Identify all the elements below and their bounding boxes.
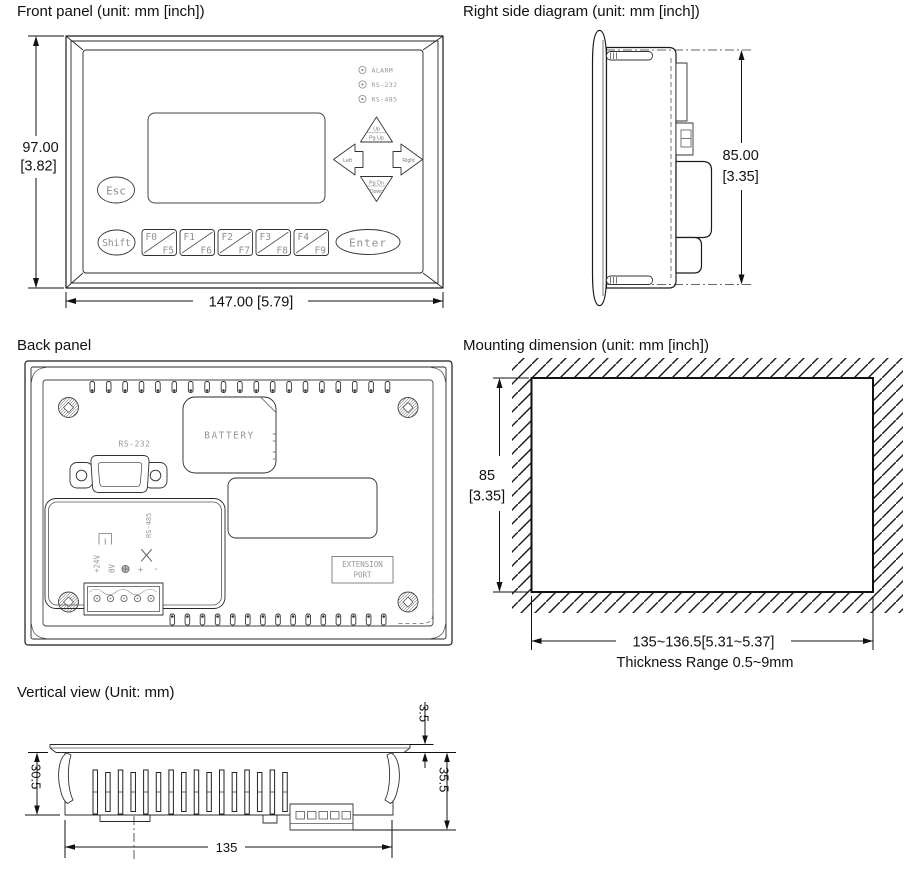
f7-label: F7: [239, 246, 250, 257]
front-height-inch: [3.82]: [20, 159, 56, 175]
vv-terminal-outline: [290, 804, 353, 830]
shift-button-label: Shift: [102, 238, 131, 249]
rs485-terminal-label: RS-485: [145, 513, 153, 538]
vv-body-dim: 30.5: [29, 764, 44, 789]
power-terminal-block[interactable]: [84, 583, 163, 615]
mounting-drawing: 85 [3.35] 135~136.5[5.31~5.37] Thickness…: [460, 330, 915, 677]
back-panel-drawing: RS-232 BATTERY: [0, 330, 460, 660]
side-connector-block: [676, 123, 693, 155]
vv-depth-dimension: 35.5: [353, 753, 456, 831]
lcd-screen: [148, 113, 325, 203]
front-height-dimension: 97.00 [3.82]: [20, 36, 64, 288]
front-width-dimension: 147.00 [5.79]: [66, 292, 443, 311]
panel-cutout: [532, 378, 874, 592]
dimension-drawing-page: { "front": { "title": "Front panel (unit…: [0, 0, 915, 877]
back-panel-view: Back panel RS-232: [0, 330, 460, 660]
rs485-led-dot-icon: [361, 98, 363, 100]
right-side-view: Right side diagram (unit: mm [inch]) 85.…: [460, 0, 915, 330]
rs485-plus-label: +: [138, 566, 143, 576]
vv-foot: [100, 815, 150, 822]
side-foot: [676, 238, 702, 274]
vv-bezel-dim: 3.5: [417, 704, 432, 722]
front-panel-view: Front panel (unit: mm [inch]) ALARM RS-2…: [0, 0, 460, 325]
front-width-dim: 147.00 [5.79]: [209, 295, 294, 311]
alarm-led-dot-icon: [361, 69, 363, 71]
rs232-led-dot-icon: [361, 83, 363, 85]
bottom-vent-slots: [170, 614, 386, 625]
pgup-key-label: Pg Up: [369, 135, 384, 141]
f9-label: F9: [315, 246, 327, 257]
cutout-height-inch: [3.35]: [469, 489, 505, 505]
vv-vent-slots: [93, 770, 287, 814]
vertical-view: Vertical view (Unit: mm) 3.5 35.5: [0, 660, 470, 877]
rs232-port-label: RS-232: [119, 440, 151, 449]
rs485-led-label: RS-485: [372, 95, 398, 103]
down-key-label: Down: [370, 189, 384, 195]
extension-port-label-line2: PORT: [353, 571, 372, 580]
rs232-screw-hole-icon: [150, 470, 161, 481]
vv-small-connector: [263, 815, 277, 823]
esc-button-label: Esc: [106, 185, 126, 198]
right-side-drawing: 85.00 [3.35]: [460, 0, 915, 330]
rs232-shell: [91, 456, 149, 493]
vv-right-clip: [385, 753, 399, 804]
mounting-dimension-view: Mounting dimension (unit: mm [inch]) 85 …: [460, 330, 915, 677]
vv-body-height-dimension: 30.5: [25, 753, 60, 816]
side-bulge: [676, 162, 712, 238]
battery-label: BATTERY: [204, 431, 255, 442]
led-indicators: ALARM RS-232 RS-485: [359, 66, 397, 103]
left-key-label: Left: [343, 158, 352, 164]
rs232-screw-hole-icon: [76, 470, 87, 481]
f5-label: F5: [163, 246, 174, 257]
rs485-minus-label: -: [153, 564, 159, 575]
extension-port-label-line1: EXTENSION: [342, 560, 383, 569]
plus24v-label: +24V: [93, 554, 102, 573]
f6-label: F6: [201, 246, 213, 257]
up-key-label: Up: [373, 127, 380, 133]
side-height-mm: 85.00: [723, 148, 759, 164]
vv-terminal-block: [290, 804, 353, 830]
zero-volt-label: 0V: [108, 563, 117, 573]
pgdn-key-label: Pg Dn: [369, 180, 384, 186]
vv-width-dim: 135: [216, 840, 238, 855]
cutout-width-dim: 135~136.5[5.31~5.37]: [633, 635, 775, 651]
side-housing: [607, 48, 677, 289]
side-height-inch: [3.35]: [723, 169, 759, 185]
f3-label: F3: [260, 232, 271, 243]
right-key-label: Right: [402, 158, 415, 164]
f2-label: F2: [222, 232, 233, 243]
enter-button-label: Enter: [349, 237, 387, 250]
function-keys: F0 F5 F1 F6 F2 F7 F3 F8 F4 F9: [142, 230, 329, 257]
side-rib: [676, 63, 687, 121]
vertical-drawing: 3.5 35.5 30.5 135: [0, 660, 470, 877]
alarm-led-label: ALARM: [372, 66, 394, 74]
f4-label: F4: [298, 232, 310, 243]
thickness-note: Thickness Range 0.5~9mm: [617, 655, 794, 671]
vv-depth-dim: 35.5: [437, 767, 452, 792]
f1-label: F1: [184, 232, 196, 243]
vv-bezel-plate: [50, 745, 410, 753]
side-height-dimension: 85.00 [3.35]: [723, 50, 759, 285]
front-panel-drawing: ALARM RS-232 RS-485 Up Pg Up Pg Dn Down …: [0, 0, 460, 325]
f0-label: F0: [146, 232, 158, 243]
cutout-height-mm: 85: [479, 468, 495, 484]
f8-label: F8: [277, 246, 289, 257]
front-height-mm: 97.00: [22, 140, 58, 156]
nav-key-cluster: Up Pg Up Pg Dn Down Left Right: [334, 117, 423, 202]
side-bezel: [593, 31, 607, 306]
rs232-led-label: RS-232: [372, 81, 398, 89]
vv-left-clip: [59, 753, 73, 804]
